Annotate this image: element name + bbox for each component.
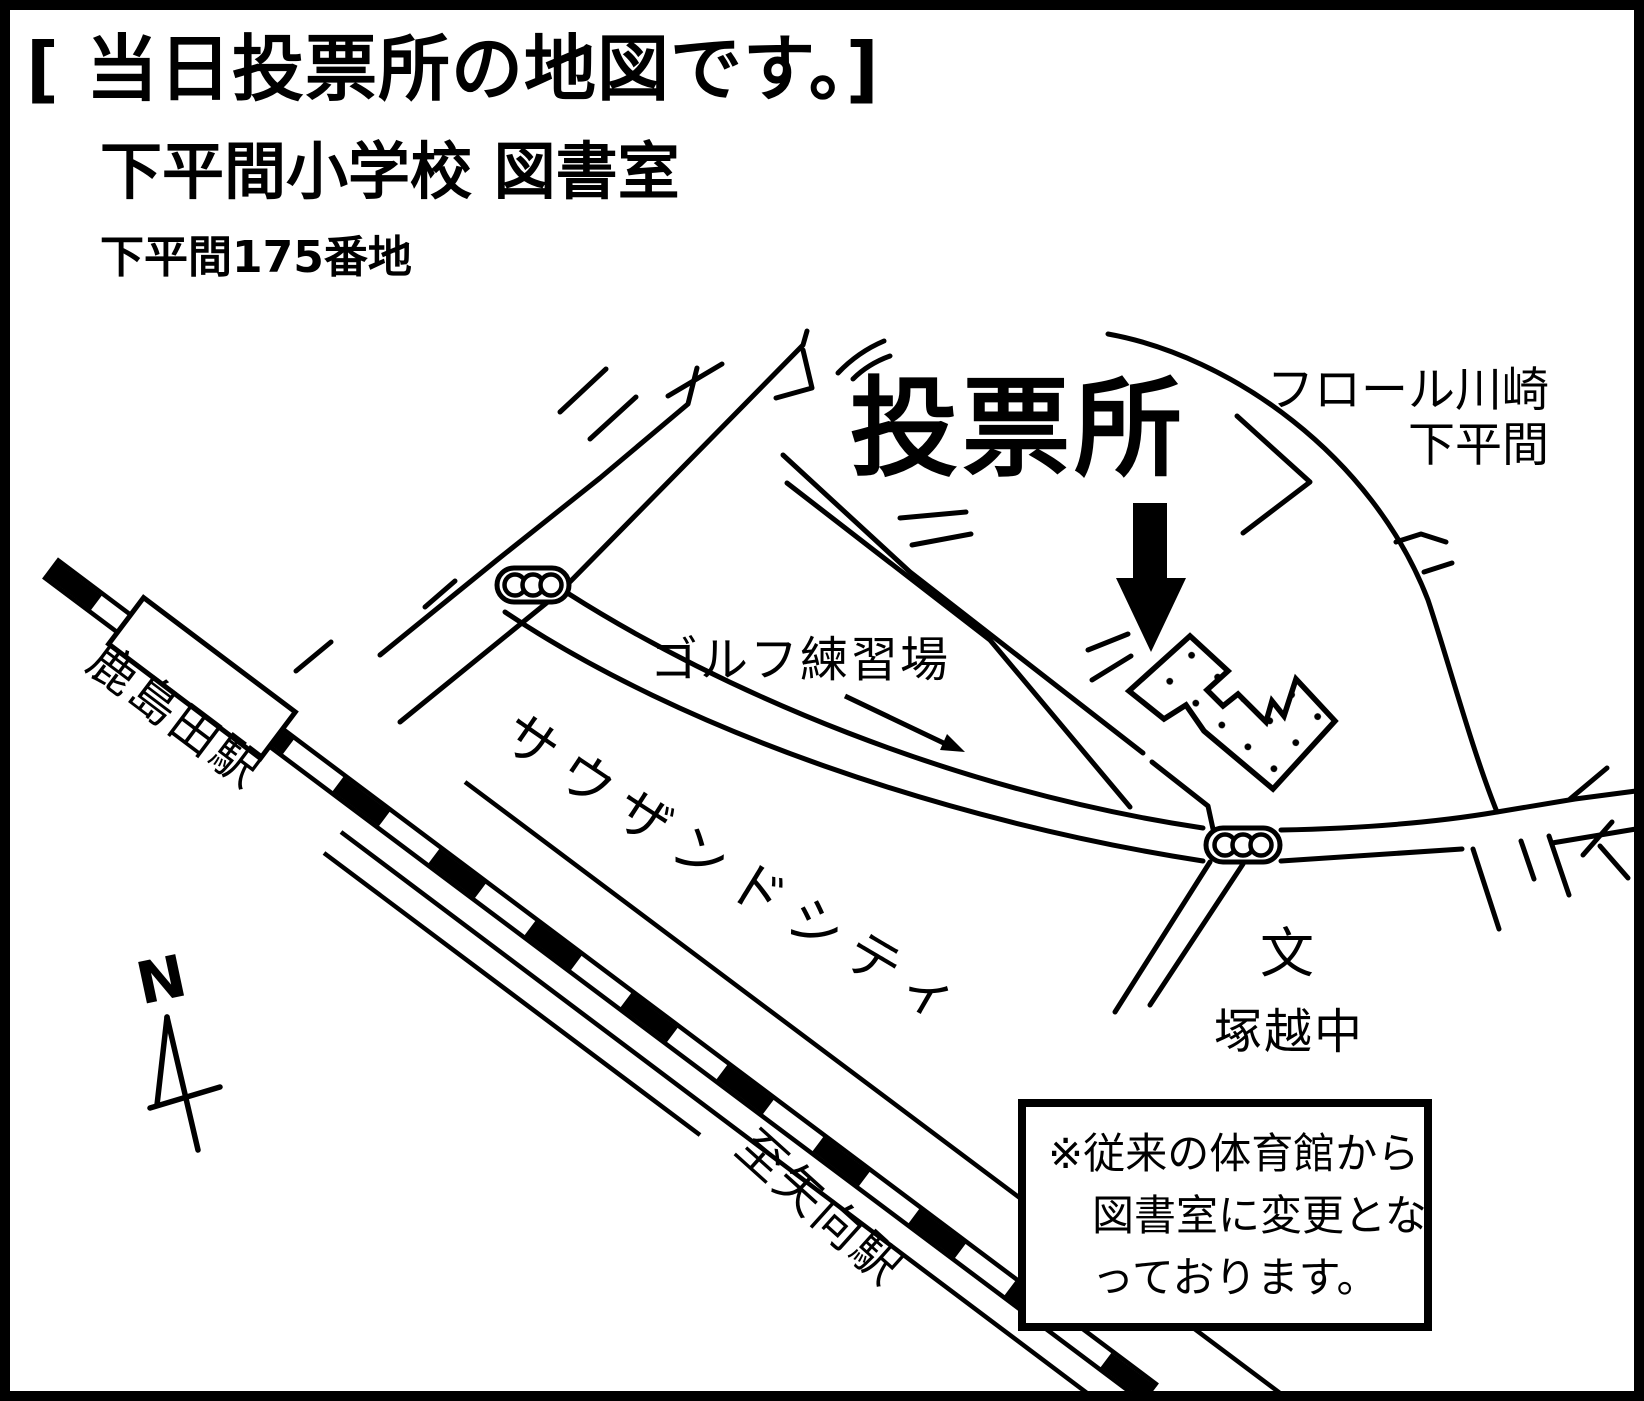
polling-site-name: 下平間小学校 図書室 (100, 121, 880, 211)
compass-north-label: N (130, 942, 192, 1019)
note-line-2: 図書室に変更とな (1048, 1185, 1410, 1247)
flor-arc-tick2 (1424, 563, 1452, 572)
note-line-3: っております。 (1048, 1247, 1410, 1309)
map-title: [ 当日投票所の地図です。] (26, 10, 880, 115)
golf-range-label: ゴルフ練習場 (650, 632, 950, 688)
thousand-city-road-north-edge (569, 594, 1203, 828)
flor-arc-chevron-street (1237, 416, 1310, 533)
road-stubs-near-station (296, 364, 722, 671)
thousand-city-label: サウザンドシティ (490, 701, 980, 1041)
golf-arrow-icon (845, 696, 965, 752)
railway-side-road-se2 (324, 853, 700, 1135)
school-road-stub-b (1088, 634, 1131, 680)
traffic-signal-1-icon (497, 568, 569, 602)
polling-arrow-icon (1116, 503, 1186, 652)
railway-side-road-se1 (341, 832, 1087, 1393)
east-road-north-edge (1281, 791, 1636, 830)
polling-site-address: 下平間175番地 (100, 221, 880, 285)
note-box: ※従来の体育館から 図書室に変更とな っております。 (1018, 1099, 1432, 1331)
polling-place-map: N 投票所 フロール川崎 下平間 ゴルフ練習場 サウザンドシティ 鹿島田駅 至矢… (0, 0, 1644, 1401)
polling-place-label: 投票所 (850, 367, 1186, 492)
school-road-nw-edge (783, 455, 1143, 753)
school-mark-label: 文 (1260, 922, 1314, 985)
tsukagoshi-road (1115, 862, 1243, 1012)
flor-kawasaki-label-line1: フロール川崎 (1267, 363, 1549, 418)
title-block: [ 当日投票所の地図です。] 下平間小学校 図書室 下平間175番地 (26, 10, 880, 285)
east-side-street-hatches (1473, 822, 1628, 929)
school-road-stub-a (900, 512, 971, 545)
tsukagoshi-jhs-label: 塚越中 (1214, 1004, 1364, 1060)
flor-arc-tick1 (1396, 534, 1446, 542)
north-arrow-icon (150, 1017, 220, 1150)
flor-kawasaki-label-line2: 下平間 (1408, 418, 1549, 473)
note-line-1: ※従来の体育館から (1048, 1123, 1410, 1185)
traffic-signal-2-icon (1206, 828, 1280, 862)
